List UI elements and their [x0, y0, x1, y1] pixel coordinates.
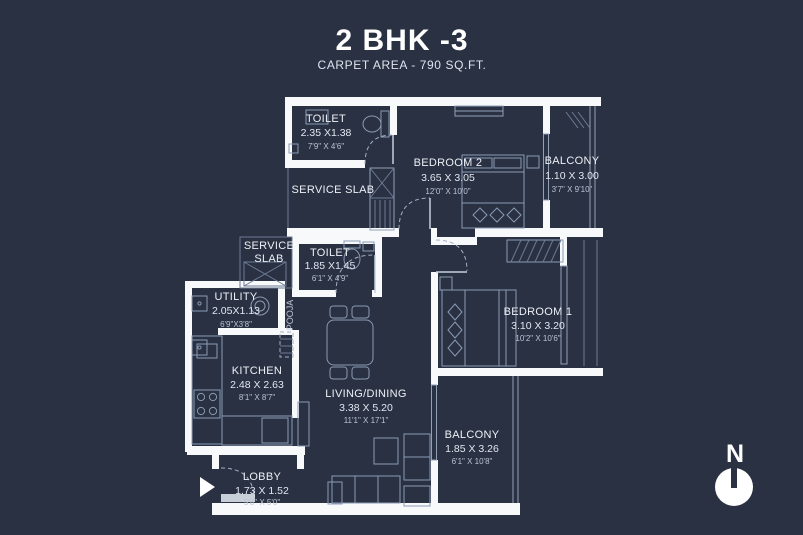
- svg-text:TOILET: TOILET: [310, 247, 350, 259]
- floor-plan-canvas: 2 BHK -3 CARPET AREA - 790 SQ.FT. TOILET…: [0, 0, 803, 535]
- svg-text:1.73 X 1.52: 1.73 X 1.52: [235, 485, 289, 497]
- label-service-slab-top: SERVICE SLAB: [292, 184, 375, 196]
- svg-text:UTILITY: UTILITY: [214, 291, 257, 303]
- svg-text:12'0" X 10'0": 12'0" X 10'0": [425, 187, 470, 196]
- label-toilet-mid: TOILET 1.85 X1.45 6'1" X 4'9": [305, 247, 356, 283]
- compass-needle-icon: [731, 468, 737, 488]
- svg-text:SERVICE SLAB: SERVICE SLAB: [292, 184, 375, 196]
- svg-text:7'9" X 4'6": 7'9" X 4'6": [308, 142, 344, 151]
- svg-text:6'9"X3'8": 6'9"X3'8": [220, 320, 252, 329]
- svg-text:POOJA: POOJA: [285, 300, 295, 331]
- svg-text:3.10 X 3.20: 3.10 X 3.20: [511, 320, 565, 332]
- svg-text:KITCHEN: KITCHEN: [232, 365, 282, 377]
- label-toilet-top: TOILET 2.35 X1.38 7'9" X 4'6": [301, 113, 352, 151]
- svg-text:2.05X1.13: 2.05X1.13: [212, 305, 260, 317]
- svg-text:SLAB: SLAB: [254, 253, 283, 265]
- svg-text:11'1" X 17'1": 11'1" X 17'1": [344, 416, 389, 425]
- svg-text:1.10 X 3.00: 1.10 X 3.00: [545, 170, 599, 182]
- svg-text:1.85 X1.45: 1.85 X1.45: [305, 260, 356, 272]
- svg-text:BALCONY: BALCONY: [445, 429, 500, 441]
- svg-text:6'1" X 4'9": 6'1" X 4'9": [312, 274, 348, 283]
- svg-text:LOBBY: LOBBY: [243, 471, 282, 483]
- background: [0, 0, 803, 535]
- label-pooja: POOJA: [285, 300, 295, 331]
- svg-text:2.48 X 2.63: 2.48 X 2.63: [230, 379, 284, 391]
- svg-text:5'8" X 5'0": 5'8" X 5'0": [244, 498, 280, 507]
- svg-text:BALCONY: BALCONY: [545, 155, 600, 167]
- svg-text:6'1" X 10'8": 6'1" X 10'8": [452, 457, 493, 466]
- svg-text:1.85 X 3.26: 1.85 X 3.26: [445, 443, 499, 455]
- svg-text:3.38 X 5.20: 3.38 X 5.20: [339, 402, 393, 414]
- svg-text:3.65 X 3.05: 3.65 X 3.05: [421, 172, 475, 184]
- svg-text:LIVING/DINING: LIVING/DINING: [325, 388, 407, 400]
- svg-text:8'1" X 8'7": 8'1" X 8'7": [239, 393, 275, 402]
- label-balcony-bottom: BALCONY 1.85 X 3.26 6'1" X 10'8": [445, 429, 500, 466]
- svg-text:2.35 X1.38: 2.35 X1.38: [301, 127, 352, 139]
- plan-subtitle: CARPET AREA - 790 SQ.FT.: [318, 58, 487, 72]
- svg-text:BEDROOM 2: BEDROOM 2: [414, 157, 483, 169]
- svg-text:BEDROOM 1: BEDROOM 1: [504, 306, 573, 318]
- label-balcony-top: BALCONY 1.10 X 3.00 3'7" X 9'10": [545, 155, 600, 194]
- plan-title: 2 BHK -3: [335, 24, 468, 57]
- svg-text:SERVICE: SERVICE: [244, 240, 294, 252]
- svg-text:10'2" X 10'6": 10'2" X 10'6": [515, 334, 560, 343]
- svg-text:TOILET: TOILET: [306, 113, 346, 125]
- svg-text:3'7" X 9'10": 3'7" X 9'10": [552, 185, 593, 194]
- floor-plan-page: 2 BHK -3 CARPET AREA - 790 SQ.FT. TOILET…: [0, 0, 803, 535]
- compass-north-label: N: [726, 440, 744, 468]
